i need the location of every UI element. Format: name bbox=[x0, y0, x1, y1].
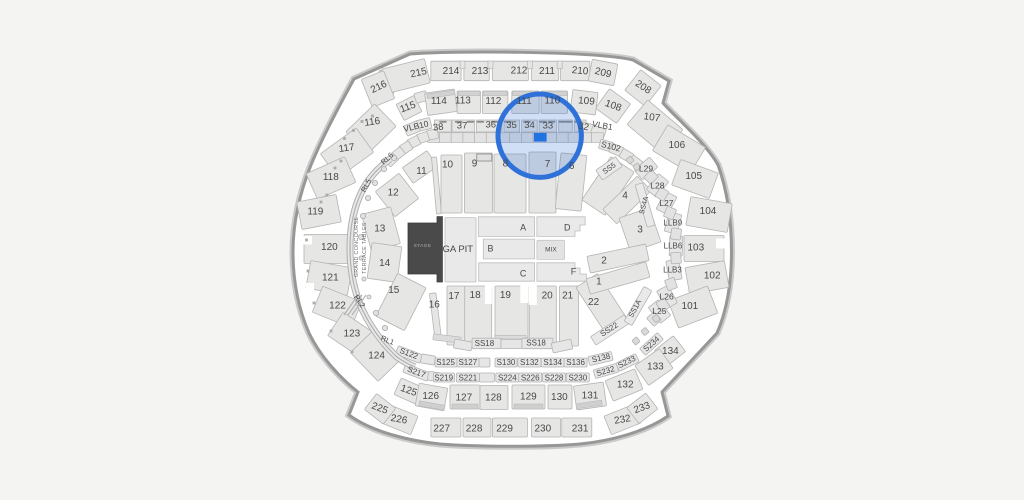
svg-text:S228: S228 bbox=[545, 373, 564, 382]
svg-text:124: 124 bbox=[368, 350, 385, 361]
svg-text:STAGE: STAGE bbox=[414, 243, 432, 248]
svg-text:S136: S136 bbox=[566, 358, 585, 367]
svg-text:121: 121 bbox=[322, 272, 339, 283]
svg-text:S224: S224 bbox=[498, 373, 517, 382]
svg-text:104: 104 bbox=[700, 206, 717, 217]
svg-text:120: 120 bbox=[321, 242, 338, 253]
svg-text:12: 12 bbox=[388, 188, 400, 199]
svg-text:3: 3 bbox=[637, 225, 643, 236]
svg-text:117: 117 bbox=[338, 142, 356, 155]
svg-text:109: 109 bbox=[578, 95, 596, 107]
svg-text:SS18: SS18 bbox=[526, 339, 546, 348]
svg-text:110: 110 bbox=[544, 96, 560, 107]
svg-text:GRAND CONCOURSE: GRAND CONCOURSE bbox=[354, 217, 360, 278]
svg-text:118: 118 bbox=[323, 172, 339, 183]
svg-text:F: F bbox=[571, 267, 577, 277]
svg-text:S125: S125 bbox=[436, 358, 455, 367]
svg-text:116: 116 bbox=[364, 116, 382, 129]
svg-text:123: 123 bbox=[344, 329, 361, 340]
svg-text:21: 21 bbox=[562, 291, 574, 302]
svg-text:MIX: MIX bbox=[545, 246, 557, 253]
svg-text:19: 19 bbox=[500, 290, 512, 301]
svg-text:33: 33 bbox=[543, 121, 554, 132]
svg-text:7: 7 bbox=[545, 159, 551, 170]
svg-text:13: 13 bbox=[374, 223, 386, 234]
svg-text:SS18: SS18 bbox=[475, 339, 495, 348]
svg-text:18: 18 bbox=[470, 290, 482, 301]
svg-text:107: 107 bbox=[643, 111, 661, 124]
svg-text:103: 103 bbox=[687, 242, 704, 253]
svg-text:22: 22 bbox=[588, 297, 600, 308]
svg-text:LLB3: LLB3 bbox=[663, 265, 682, 274]
svg-text:36: 36 bbox=[486, 120, 497, 131]
svg-text:D: D bbox=[564, 223, 571, 233]
svg-text:8: 8 bbox=[503, 159, 509, 170]
svg-text:229: 229 bbox=[496, 423, 513, 434]
svg-text:L26: L26 bbox=[660, 291, 674, 301]
svg-text:S219: S219 bbox=[434, 373, 453, 382]
svg-text:132: 132 bbox=[617, 379, 634, 390]
svg-text:S221: S221 bbox=[458, 373, 477, 382]
svg-text:106: 106 bbox=[668, 140, 685, 151]
svg-text:L25: L25 bbox=[652, 306, 666, 316]
svg-text:2: 2 bbox=[601, 255, 607, 266]
svg-text:213: 213 bbox=[472, 66, 489, 77]
svg-text:230: 230 bbox=[534, 423, 551, 434]
svg-text:112: 112 bbox=[485, 96, 501, 107]
svg-text:1: 1 bbox=[596, 276, 602, 287]
svg-text:35: 35 bbox=[506, 120, 517, 131]
svg-text:122: 122 bbox=[329, 301, 346, 312]
svg-text:101: 101 bbox=[682, 301, 699, 312]
svg-text:37: 37 bbox=[457, 121, 468, 132]
svg-text:S226: S226 bbox=[521, 373, 540, 382]
svg-text:S134: S134 bbox=[543, 358, 562, 367]
svg-text:20: 20 bbox=[542, 291, 554, 302]
svg-text:LLB6: LLB6 bbox=[664, 242, 683, 251]
svg-text:L27: L27 bbox=[659, 198, 673, 208]
svg-text:111: 111 bbox=[516, 96, 532, 107]
svg-text:133: 133 bbox=[647, 361, 664, 372]
svg-text:10: 10 bbox=[442, 160, 454, 171]
svg-text:L28: L28 bbox=[650, 181, 664, 191]
svg-text:130: 130 bbox=[551, 392, 568, 403]
svg-text:128: 128 bbox=[485, 393, 502, 404]
svg-text:127: 127 bbox=[455, 392, 472, 403]
svg-text:134: 134 bbox=[662, 346, 679, 357]
svg-text:214: 214 bbox=[443, 66, 460, 77]
svg-text:GA PIT: GA PIT bbox=[442, 244, 473, 255]
svg-text:211: 211 bbox=[539, 66, 555, 77]
svg-text:L29: L29 bbox=[639, 164, 653, 174]
svg-text:S127: S127 bbox=[458, 358, 477, 367]
svg-text:210: 210 bbox=[571, 65, 589, 77]
svg-text:38: 38 bbox=[432, 122, 444, 134]
svg-text:6: 6 bbox=[569, 161, 575, 172]
svg-text:14: 14 bbox=[379, 258, 391, 269]
svg-text:9: 9 bbox=[472, 158, 478, 169]
svg-text:231: 231 bbox=[572, 423, 589, 434]
svg-text:102: 102 bbox=[704, 270, 721, 281]
svg-text:15: 15 bbox=[388, 285, 400, 296]
svg-text:212: 212 bbox=[511, 66, 528, 77]
svg-text:B: B bbox=[487, 243, 493, 253]
svg-text:11: 11 bbox=[416, 166, 427, 177]
svg-text:S132: S132 bbox=[520, 358, 539, 367]
svg-text:114: 114 bbox=[431, 96, 447, 107]
svg-text:129: 129 bbox=[520, 391, 537, 402]
svg-text:S130: S130 bbox=[497, 358, 516, 367]
svg-text:119: 119 bbox=[307, 206, 323, 217]
svg-text:34: 34 bbox=[524, 120, 535, 131]
svg-text:4: 4 bbox=[622, 191, 628, 202]
svg-text:16: 16 bbox=[429, 299, 441, 310]
svg-text:17: 17 bbox=[448, 291, 460, 302]
svg-text:TERRACE TABLES: TERRACE TABLES bbox=[362, 222, 368, 274]
svg-text:131: 131 bbox=[582, 391, 599, 402]
svg-text:S230: S230 bbox=[568, 373, 587, 382]
svg-text:113: 113 bbox=[455, 96, 471, 107]
svg-text:227: 227 bbox=[433, 423, 450, 434]
svg-text:32: 32 bbox=[577, 120, 590, 133]
svg-text:126: 126 bbox=[422, 391, 439, 402]
svg-text:C: C bbox=[520, 268, 527, 278]
svg-text:228: 228 bbox=[466, 424, 483, 435]
svg-text:LLB9: LLB9 bbox=[663, 218, 682, 227]
svg-text:A: A bbox=[520, 223, 526, 233]
svg-text:105: 105 bbox=[685, 171, 702, 182]
